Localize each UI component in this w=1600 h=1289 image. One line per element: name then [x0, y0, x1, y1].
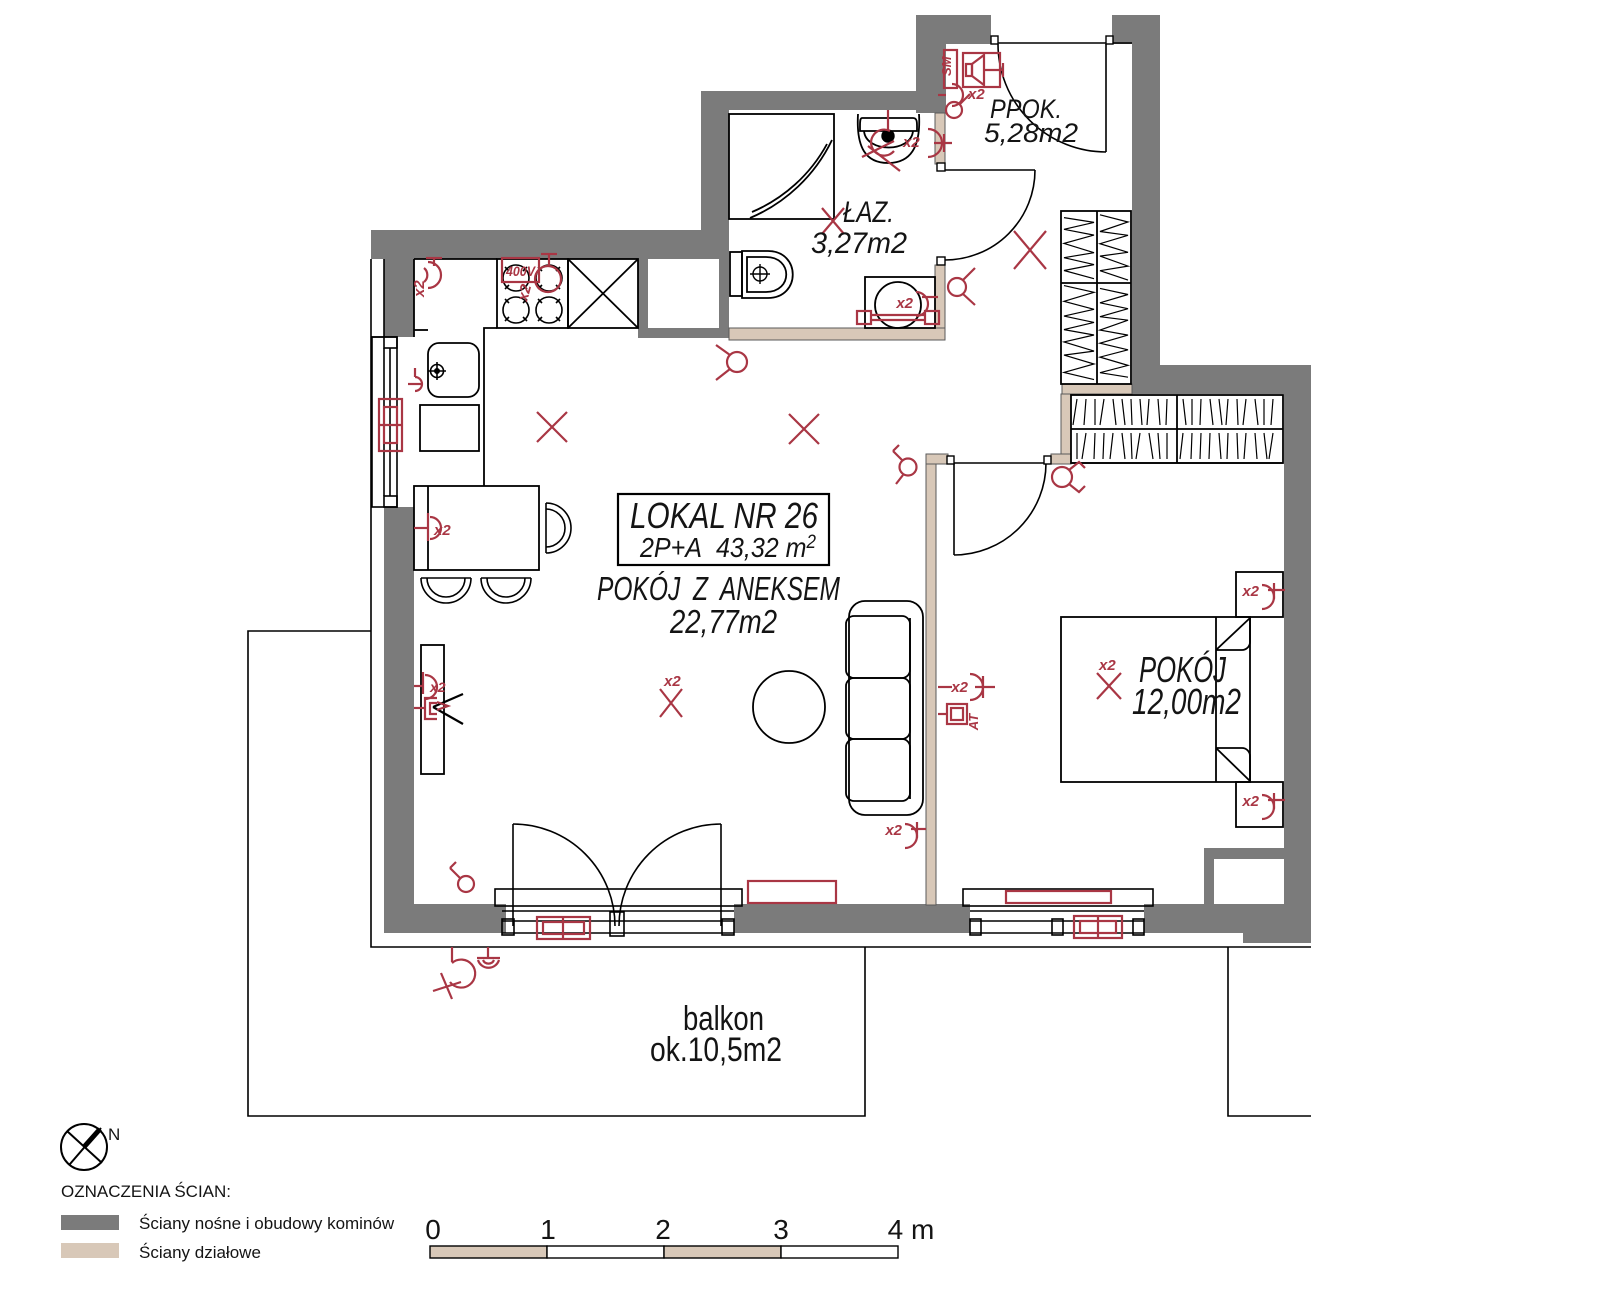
svg-text:0: 0 [425, 1214, 441, 1245]
svg-text:LOKAL NR 26: LOKAL NR 26 [630, 495, 819, 536]
svg-text:x2: x2 [967, 86, 985, 103]
svg-text:Ściany nośne i obudowy kominów: Ściany nośne i obudowy kominów [139, 1214, 395, 1233]
svg-text:x2: x2 [663, 673, 681, 690]
svg-text:x2: x2 [1098, 657, 1116, 674]
svg-text:x2: x2 [895, 295, 913, 312]
svg-text:22,77m2: 22,77m2 [669, 603, 777, 640]
svg-text:2P+A: 2P+A [639, 532, 702, 563]
svg-text:1: 1 [540, 1214, 556, 1245]
svg-text:x2: x2 [429, 679, 446, 695]
svg-text:12,00m2: 12,00m2 [1132, 681, 1241, 722]
svg-text:4 m: 4 m [888, 1214, 935, 1245]
svg-text:ŁAZ.: ŁAZ. [843, 196, 894, 229]
svg-text:OZNACZENIA ŚCIAN:: OZNACZENIA ŚCIAN: [61, 1182, 231, 1201]
svg-text:SM: SM [939, 55, 954, 76]
svg-text:ok.10,5m2: ok.10,5m2 [650, 1031, 782, 1069]
svg-text:x2: x2 [1241, 583, 1259, 600]
svg-text:3,27m2: 3,27m2 [811, 227, 907, 260]
svg-text:x2: x2 [902, 134, 920, 151]
svg-text:x2: x2 [884, 822, 902, 839]
svg-text:N: N [108, 1125, 120, 1144]
svg-text:x2: x2 [1241, 793, 1259, 810]
svg-text:43,32 m2: 43,32 m2 [716, 532, 816, 563]
svg-text:x2: x2 [433, 522, 451, 539]
svg-text:AT: AT [966, 713, 981, 731]
svg-text:POKÓJ Z ANEKSEM: POKÓJ Z ANEKSEM [597, 570, 840, 607]
svg-text:3: 3 [773, 1214, 789, 1245]
svg-text:Ściany działowe: Ściany działowe [139, 1243, 261, 1262]
svg-text:x2: x2 [411, 280, 428, 298]
svg-text:2: 2 [655, 1214, 671, 1245]
svg-text:400V: 400V [505, 263, 536, 279]
svg-text:x2: x2 [950, 679, 968, 696]
svg-text:5,28m2: 5,28m2 [984, 118, 1078, 148]
